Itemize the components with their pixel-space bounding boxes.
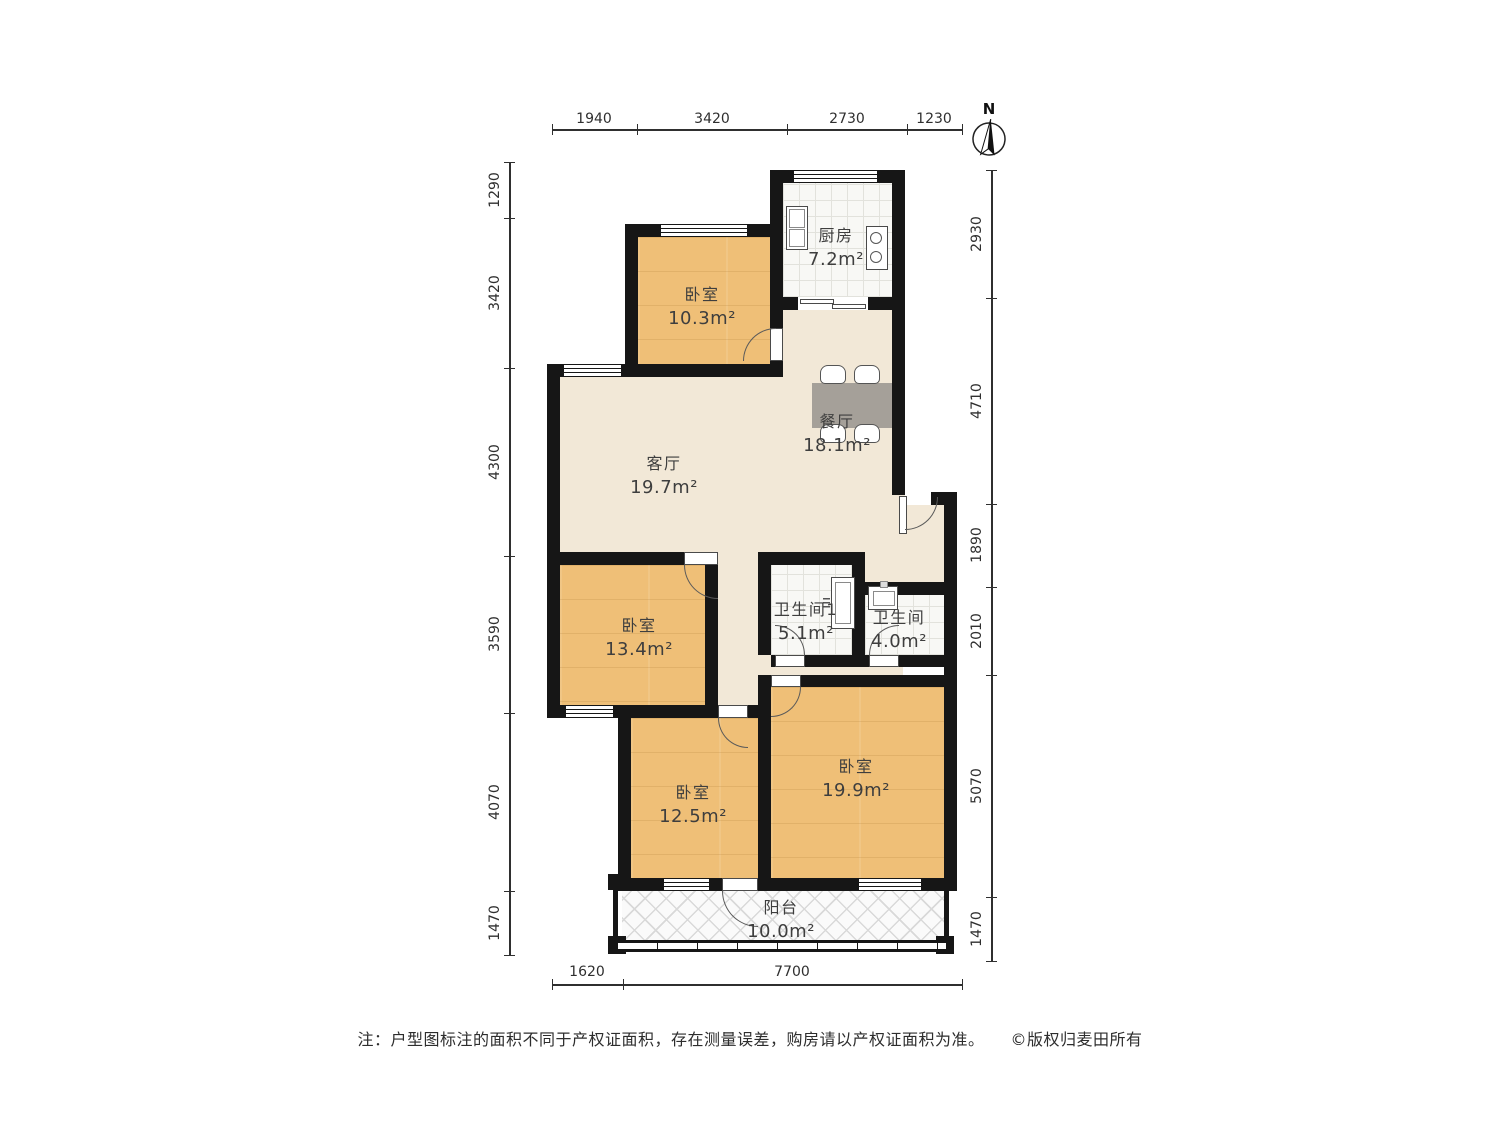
- room-name: 卧室: [659, 779, 727, 803]
- dim-label: 2930: [969, 216, 985, 252]
- dim-label: 2010: [969, 613, 985, 649]
- door-leaf: [775, 655, 805, 667]
- footer-note: 注：户型图标注的面积不同于产权证面积，存在测量误差，购房请以产权证面积为准。©版…: [0, 1026, 1500, 1050]
- window: [663, 878, 710, 891]
- dim-label: 1230: [916, 111, 952, 127]
- room-label-kitchen: 厨房 7.2m²: [808, 222, 864, 270]
- dim-label: 3420: [694, 111, 730, 127]
- room-label-dining: 餐厅 18.1m²: [803, 408, 871, 456]
- room-label-bedroom-bottom-left: 卧室 12.5m²: [659, 779, 727, 827]
- dim-label: 2730: [829, 111, 865, 127]
- door-leaf: [684, 552, 718, 565]
- room-area: 18.1m²: [803, 435, 871, 456]
- dim-label: 5070: [969, 768, 985, 804]
- dim-label: 1470: [969, 911, 985, 947]
- window: [660, 224, 748, 237]
- room-name: 卧室: [605, 612, 673, 636]
- room-name: 卫生间: [871, 604, 927, 628]
- dimension-line-bottom: [552, 984, 962, 986]
- dimension-line-top: [552, 129, 962, 131]
- disclaimer-text: 注：户型图标注的面积不同于产权证面积，存在测量误差，购房请以产权证面积为准。: [357, 1030, 984, 1049]
- floor-living-dining: [718, 552, 758, 718]
- dim-label: 1290: [487, 172, 503, 208]
- dim-label: 4300: [487, 444, 503, 480]
- kitchen-sink: [786, 206, 808, 250]
- door-leaf: [771, 675, 801, 687]
- dimension-line-right: [991, 170, 993, 961]
- wall: [758, 552, 865, 565]
- north-compass-icon: N: [963, 100, 1015, 164]
- chair: [820, 365, 846, 384]
- dimension-line-left: [509, 162, 511, 955]
- room-area: 4.0m²: [871, 631, 927, 652]
- door-leaf: [722, 878, 758, 891]
- room-name: 餐厅: [803, 408, 871, 432]
- room-area: 19.9m²: [822, 780, 890, 801]
- room-label-bedroom-top: 卧室 10.3m²: [668, 281, 736, 329]
- room-label-bath2: 卫生间 4.0m²: [871, 604, 927, 652]
- room-area: 13.4m²: [605, 639, 673, 660]
- wall: [758, 552, 771, 655]
- wall: [944, 492, 957, 891]
- wall: [613, 884, 618, 942]
- dim-label: 3590: [487, 616, 503, 652]
- room-label-bedroom-bottom-right: 卧室 19.9m²: [822, 753, 890, 801]
- room-name: 卧室: [822, 753, 890, 777]
- dim-label: 1470: [487, 905, 503, 941]
- room-name: 阳台: [747, 894, 815, 918]
- room-name: 卧室: [668, 281, 736, 305]
- dim-label: 4070: [487, 784, 503, 820]
- door-leaf: [869, 655, 899, 667]
- room-name: 厨房: [808, 222, 864, 246]
- room-area: 19.7m²: [630, 477, 698, 498]
- window: [793, 170, 878, 183]
- wall: [892, 170, 905, 495]
- compass-north-label: N: [983, 100, 996, 118]
- window: [565, 705, 614, 718]
- room-name: 客厅: [630, 450, 698, 474]
- sliding-door-panel: [832, 304, 866, 309]
- room-label-balcony: 阳台 10.0m²: [747, 894, 815, 942]
- wall: [625, 224, 638, 377]
- room-area: 5.1m²: [774, 623, 838, 644]
- dim-label: 1620: [569, 964, 605, 980]
- room-label-bath1: 卫生间1 5.1m²: [774, 596, 838, 644]
- wall: [770, 170, 783, 328]
- dim-label: 4710: [969, 383, 985, 419]
- dim-label: 7700: [774, 964, 810, 980]
- room-area: 10.0m²: [747, 921, 815, 942]
- window: [858, 878, 922, 891]
- room-area: 7.2m²: [808, 249, 864, 270]
- dim-label: 1890: [969, 527, 985, 563]
- room-name: 卫生间1: [774, 596, 838, 620]
- wall: [618, 705, 631, 891]
- stove: [866, 226, 888, 270]
- dim-label: 3420: [487, 275, 503, 311]
- wall: [547, 364, 560, 718]
- room-label-bedroom-mid: 卧室 13.4m²: [605, 612, 673, 660]
- door-leaf: [718, 705, 748, 718]
- dim-label: 1940: [576, 111, 612, 127]
- wall: [852, 582, 944, 595]
- sliding-door-panel: [800, 299, 834, 304]
- room-area: 10.3m²: [668, 308, 736, 329]
- room-area: 12.5m²: [659, 806, 727, 827]
- copyright-text: ©版权归麦田所有: [1011, 1030, 1143, 1049]
- room-label-living: 客厅 19.7m²: [630, 450, 698, 498]
- floorplan-page: 卧室 10.3m² 厨房 7.2m² 餐厅 18.1m² 客厅 19.7m² 卧…: [0, 0, 1500, 1125]
- wall: [758, 675, 771, 891]
- wall: [625, 364, 783, 377]
- chair: [854, 365, 880, 384]
- window: [563, 364, 622, 377]
